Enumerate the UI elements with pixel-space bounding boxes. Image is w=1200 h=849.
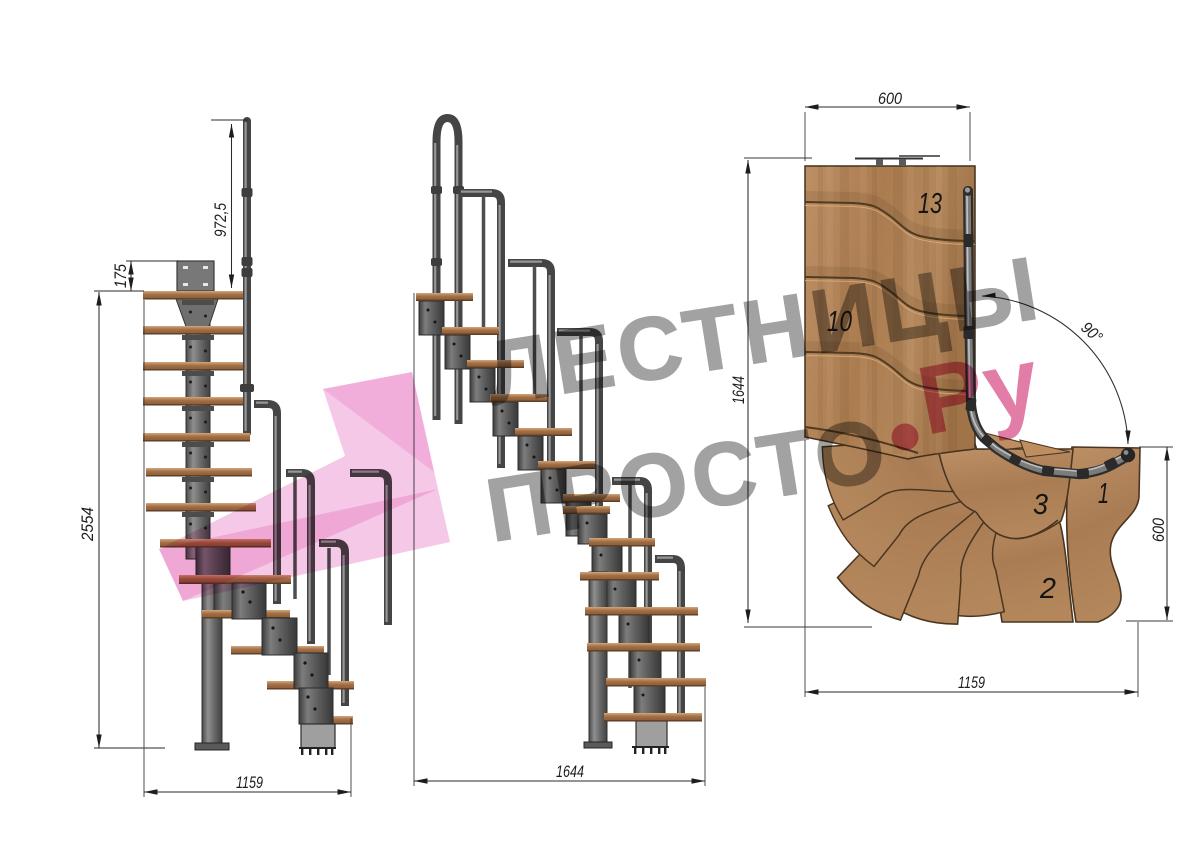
svg-text:1644: 1644 bbox=[556, 763, 584, 781]
svg-text:1159: 1159 bbox=[958, 674, 985, 692]
svg-text:972,5: 972,5 bbox=[212, 202, 230, 237]
svg-text:2: 2 bbox=[1039, 573, 1056, 605]
svg-text:175: 175 bbox=[112, 263, 130, 288]
svg-text:Ру: Ру bbox=[909, 326, 1048, 456]
svg-text:1: 1 bbox=[1098, 478, 1109, 510]
svg-text:1159: 1159 bbox=[236, 774, 263, 792]
svg-text:2554: 2554 bbox=[79, 507, 97, 542]
svg-text:ПРОСТО: ПРОСТО bbox=[479, 400, 892, 562]
svg-text:90°: 90° bbox=[1077, 319, 1106, 347]
svg-text:3: 3 bbox=[1033, 489, 1048, 521]
svg-text:600: 600 bbox=[878, 90, 903, 108]
svg-text:13: 13 bbox=[918, 188, 942, 220]
svg-text:600: 600 bbox=[1150, 517, 1168, 542]
